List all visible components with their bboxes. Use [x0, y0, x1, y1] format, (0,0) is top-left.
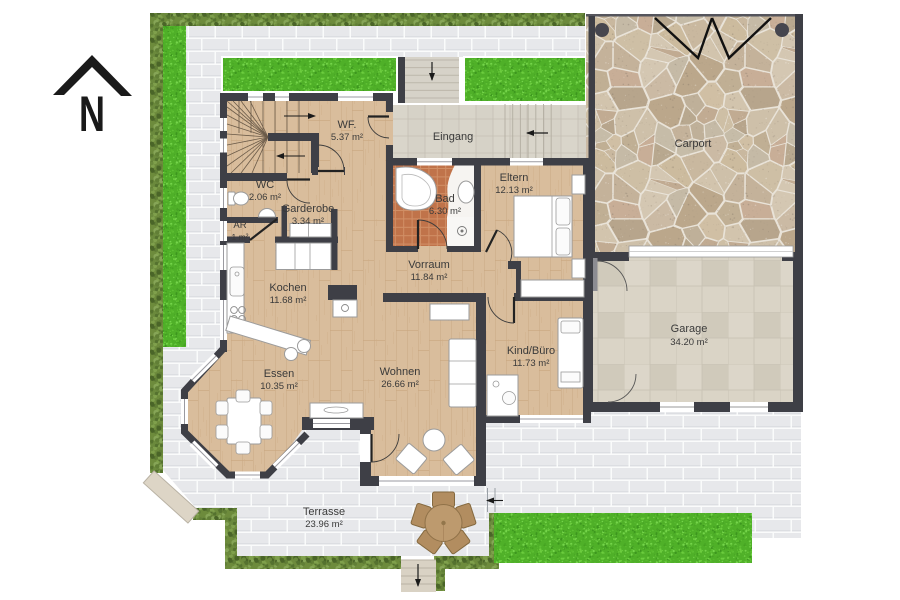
svg-text:10.35 m²: 10.35 m² — [260, 381, 298, 392]
svg-text:Wohnen: Wohnen — [380, 366, 421, 378]
svg-text:5.37 m²: 5.37 m² — [331, 132, 363, 143]
svg-text:Kind/Büro: Kind/Büro — [507, 345, 555, 357]
svg-text:WC: WC — [256, 179, 274, 191]
svg-text:3.34 m²: 3.34 m² — [292, 216, 324, 227]
svg-text:WF.: WF. — [338, 119, 357, 131]
svg-text:1 m²: 1 m² — [232, 232, 249, 242]
svg-text:Bad: Bad — [435, 193, 455, 205]
svg-text:Carport: Carport — [675, 138, 712, 150]
svg-text:26.66 m²: 26.66 m² — [381, 379, 419, 390]
svg-text:Vorraum: Vorraum — [408, 259, 450, 271]
svg-text:Essen: Essen — [264, 368, 295, 380]
svg-text:6.30 m²: 6.30 m² — [429, 206, 461, 217]
svg-text:Garage: Garage — [671, 323, 708, 335]
svg-text:Eingang: Eingang — [433, 131, 473, 143]
svg-text:N: N — [79, 87, 105, 142]
svg-text:12.13 m²: 12.13 m² — [495, 185, 533, 196]
svg-text:34.20 m²: 34.20 m² — [670, 337, 708, 348]
svg-text:Eltern: Eltern — [500, 172, 529, 184]
svg-text:Garderobe: Garderobe — [282, 203, 335, 215]
svg-text:Kochen: Kochen — [269, 282, 306, 294]
svg-text:Terrasse: Terrasse — [303, 506, 345, 518]
svg-text:11.68 m²: 11.68 m² — [270, 295, 307, 306]
svg-text:11.84 m²: 11.84 m² — [411, 272, 448, 283]
svg-text:AR: AR — [233, 220, 246, 231]
svg-text:11.73 m²: 11.73 m² — [513, 358, 550, 369]
svg-text:2.06 m²: 2.06 m² — [249, 192, 281, 203]
svg-text:23.96 m²: 23.96 m² — [305, 519, 343, 530]
